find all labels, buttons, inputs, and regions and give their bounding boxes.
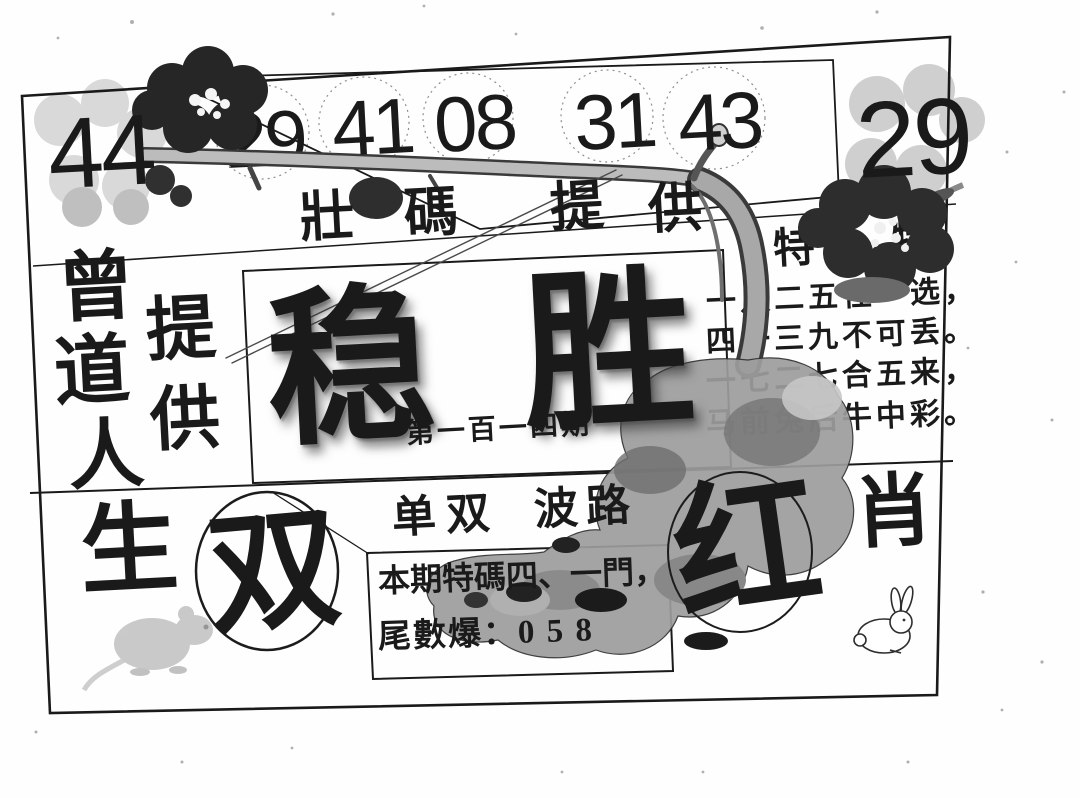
banner-char-gong: 供	[647, 181, 704, 238]
col1-char-dao: 道	[52, 332, 132, 412]
xiao-label: 肖	[852, 470, 936, 554]
col1-char-zeng: 曾	[56, 248, 136, 328]
header-dan-shuang: 单双	[391, 491, 501, 541]
tip-line-1: 本期特碼四、一門，	[378, 555, 667, 597]
col1-char-ren: 人	[66, 416, 146, 496]
top-number-29-right: 29	[853, 81, 973, 195]
header-bo-lu: 波路	[533, 483, 639, 532]
top-number-43: 43	[676, 80, 763, 164]
banner-char-ti: 提	[549, 179, 606, 236]
banner-char-zhuang: 壯	[299, 189, 356, 246]
scanned-lottery-flyer: { "paper": { "bg": "#ffffff", "ink": "#1…	[0, 0, 1080, 798]
tip-line-2: 尾數爆：0 5 8	[377, 614, 594, 655]
circled-red-char: 红	[665, 467, 830, 632]
col2-char-gong: 供	[148, 384, 222, 458]
circled-double-char: 双	[202, 500, 345, 643]
top-number-41: 41	[330, 86, 415, 168]
col1-char-sheng: 生	[78, 498, 181, 601]
top-number-31: 31	[572, 80, 657, 162]
top-number-44: 44	[45, 99, 155, 204]
col2-char-ti: 提	[144, 294, 218, 368]
top-number-08: 08	[432, 82, 517, 164]
banner-char-ma: 碼	[403, 185, 460, 242]
over-art-text-layer: 44 41 08 31 43 29 壯 碼 提 供 曾 道 人 提 供 生 稳 …	[0, 0, 1080, 798]
